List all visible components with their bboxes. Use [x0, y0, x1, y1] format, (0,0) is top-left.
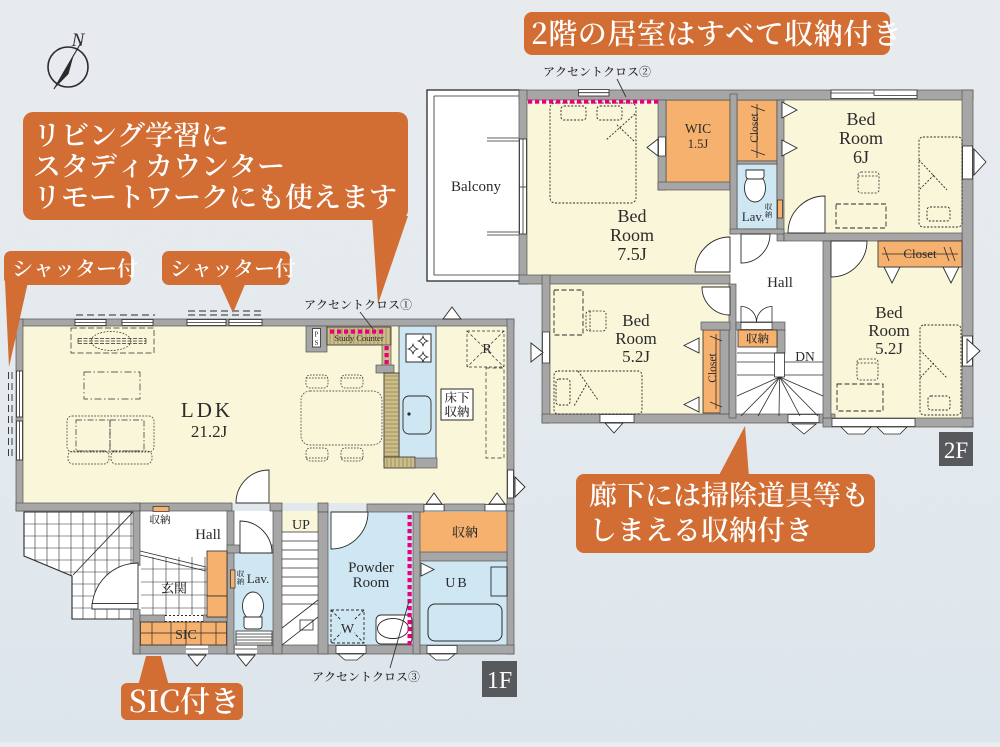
svg-text:P: P: [315, 331, 319, 339]
svg-text:Bed: Bed: [622, 311, 650, 330]
svg-text:DN: DN: [795, 349, 815, 364]
svg-text:R: R: [482, 342, 492, 357]
svg-text:7.5J: 7.5J: [617, 244, 647, 264]
svg-text:Lav.: Lav.: [247, 571, 270, 586]
svg-text:Hall: Hall: [767, 275, 793, 291]
svg-text:Closet: Closet: [903, 246, 937, 261]
svg-text:Room: Room: [868, 321, 910, 340]
svg-text:N: N: [71, 30, 86, 51]
svg-text:W: W: [341, 622, 355, 637]
svg-text:5.2J: 5.2J: [622, 347, 650, 366]
svg-text:Balcony: Balcony: [451, 179, 501, 195]
svg-text:5.2J: 5.2J: [875, 339, 903, 358]
svg-text:Room: Room: [615, 329, 657, 348]
svg-text:SIC: SIC: [175, 628, 197, 643]
svg-text:Room: Room: [839, 128, 883, 148]
svg-text:Bed: Bed: [618, 206, 647, 226]
svg-text:S: S: [315, 339, 319, 347]
svg-text:Powder: Powder: [348, 560, 394, 576]
svg-text:2F: 2F: [944, 438, 968, 463]
svg-text:UP: UP: [292, 518, 310, 533]
svg-text:Closet: Closet: [707, 353, 719, 383]
svg-text:UB: UB: [445, 576, 468, 591]
svg-text:Lav.: Lav.: [742, 209, 765, 224]
svg-text:LDK: LDK: [181, 398, 233, 422]
svg-text:Bed: Bed: [875, 303, 903, 322]
svg-text:Study Counter: Study Counter: [334, 333, 384, 343]
svg-text:21.2J: 21.2J: [191, 422, 228, 441]
svg-text:Hall: Hall: [195, 527, 221, 543]
svg-text:1.5J: 1.5J: [688, 137, 709, 151]
svg-text:Room: Room: [353, 575, 390, 591]
svg-text:WIC: WIC: [685, 121, 711, 136]
svg-text:Room: Room: [610, 225, 654, 245]
svg-text:Bed: Bed: [847, 109, 876, 129]
svg-text:6J: 6J: [853, 147, 869, 167]
svg-text:1F: 1F: [487, 668, 512, 694]
svg-text:Closet: Closet: [749, 113, 761, 143]
